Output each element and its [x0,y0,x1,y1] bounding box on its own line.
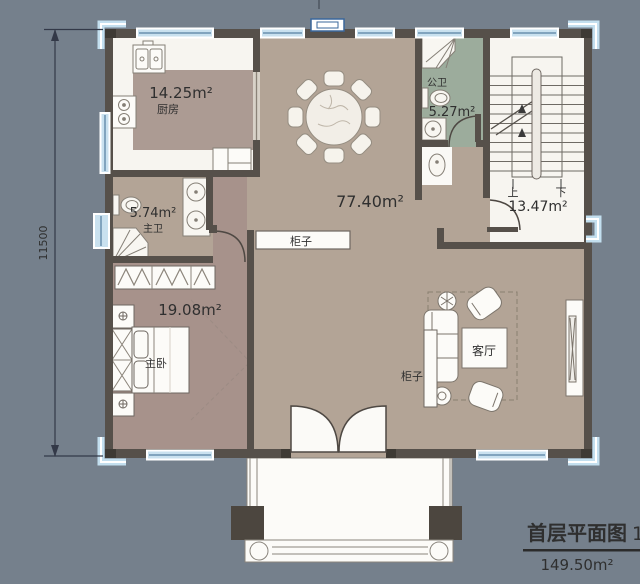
floor-plan-page: 11500 14.25m² 厨房 公卫 5.27m² 77.40m² 上 下 1… [0,0,640,584]
stair-up-label: 上 [508,186,519,199]
pillow [134,331,148,358]
floor-plan-svg: 11500 14.25m² 厨房 公卫 5.27m² 77.40m² 上 下 1… [0,0,640,584]
cabinet-living-label: 柜子 [401,370,423,383]
public-bath-area-label: 5.27m² [429,105,476,120]
bedroom-name-label: 主卧 [145,357,167,370]
stair-down-label: 下 [556,186,567,199]
roof-flue [311,0,344,31]
public-bath-name-label: 公卫 [427,78,447,89]
porch-steps [245,540,453,562]
dining-table [288,71,380,163]
entry-porch [231,458,462,562]
stair-area-label: 13.47m² [508,199,567,215]
toilet-public-tank [422,88,428,108]
porch-column-right [429,506,462,540]
kitchen-area-label: 14.25m² [149,84,213,102]
porch-column-left [231,506,264,540]
hall-area-label: 77.40m² [336,192,404,211]
toilet-master-tank [113,195,119,215]
dimension-label: 11500 [37,226,50,261]
plan-total-area: 149.50m² [540,556,613,574]
cabinet-hall-label: 柜子 [290,235,312,248]
sink-nook [429,154,445,176]
plan-title: 首层平面图 [527,521,627,545]
master-bath-name-label: 主卫 [143,223,163,235]
kitchen-name-label: 厨房 [157,103,179,116]
title-block: 首层平面图 1 149.50m² [523,521,640,574]
cabinet-living [424,330,437,407]
bedroom-area-label: 19.08m² [158,301,222,319]
plan-scale-fragment: 1 [632,523,640,545]
stair-handrail [532,69,541,179]
master-bath-area-label: 5.74m² [130,206,177,221]
living-name-label: 客厅 [472,343,496,358]
